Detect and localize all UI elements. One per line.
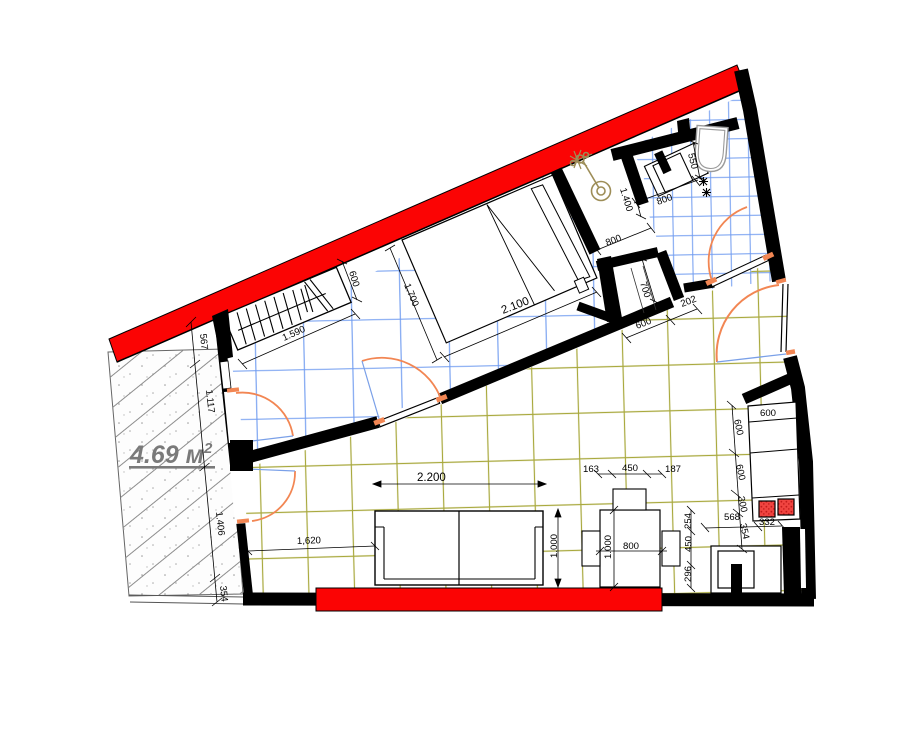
svg-text:4.69 м: 4.69 м — [129, 441, 204, 469]
svg-text:450: 450 — [684, 536, 695, 552]
svg-text:254: 254 — [683, 512, 694, 529]
svg-text:2.200: 2.200 — [417, 472, 446, 484]
svg-text:800: 800 — [623, 541, 639, 552]
svg-text:332: 332 — [759, 517, 775, 528]
svg-text:1.000: 1.000 — [549, 534, 560, 558]
svg-text:1.000: 1.000 — [603, 535, 614, 559]
svg-text:450: 450 — [622, 463, 638, 474]
svg-text:1,620: 1,620 — [297, 535, 321, 547]
svg-text:568: 568 — [724, 512, 740, 523]
svg-text:354: 354 — [217, 585, 230, 603]
svg-text:163: 163 — [583, 464, 599, 475]
svg-text:567: 567 — [197, 333, 210, 350]
svg-text:187: 187 — [665, 464, 681, 475]
svg-text:296: 296 — [683, 566, 694, 582]
svg-text:600: 600 — [760, 408, 776, 419]
svg-text:2: 2 — [203, 440, 213, 457]
